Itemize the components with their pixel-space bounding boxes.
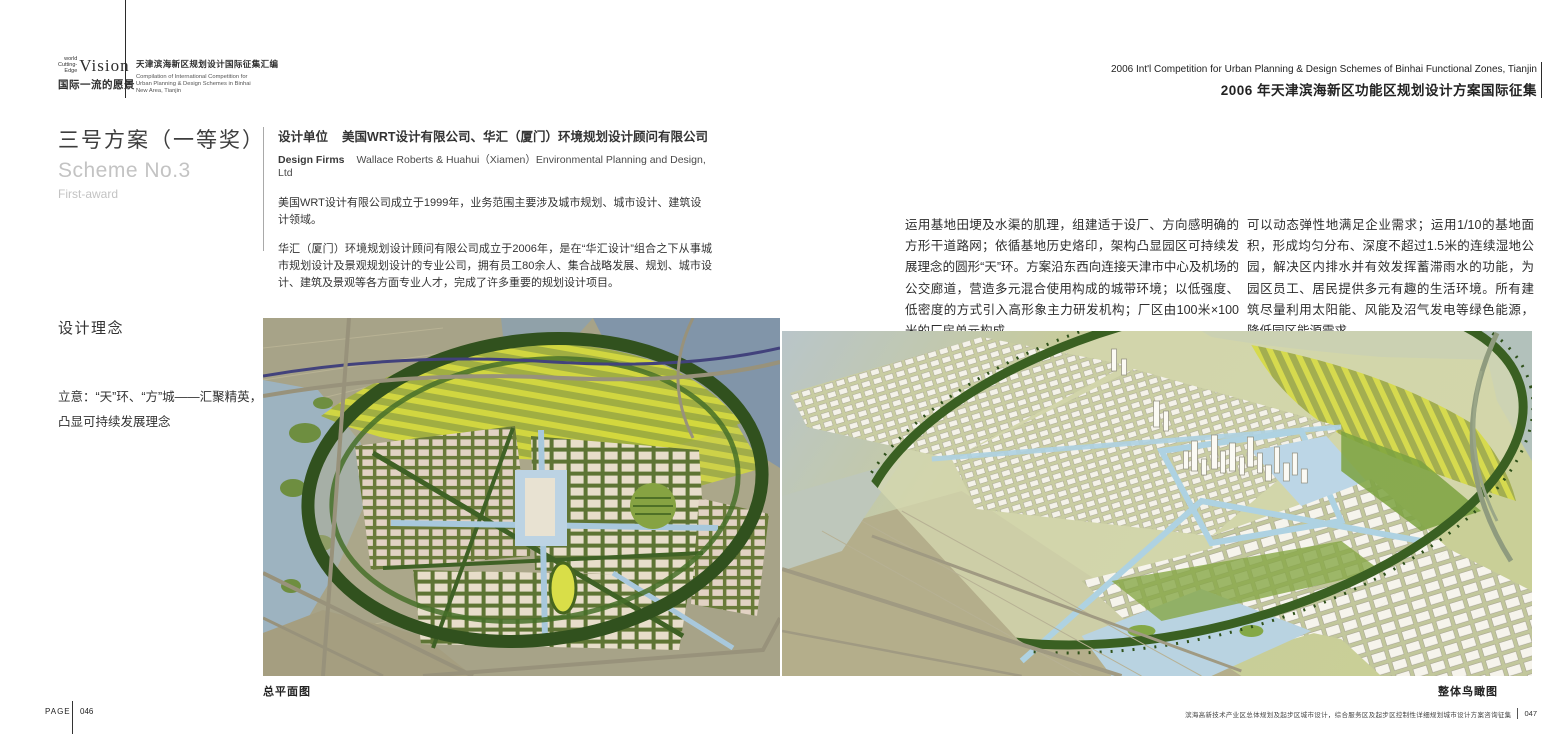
scheme-title-cn: 三号方案（一等奖） [58,124,265,154]
design-firms-row-en: Design FirmsWallace Roberts & Huahui（Xia… [278,152,712,179]
scheme-award-label: First-award [58,187,265,201]
logo-wordmark: Vision [79,57,129,74]
series-title-cn: 天津滨海新区规划设计国际征集汇编 [136,58,258,70]
series-title-block: 天津滨海新区规划设计国际征集汇编 Compilation of Internat… [136,58,258,95]
design-firms-label-cn: 设计单位 [278,130,328,144]
description-column-2: 可以动态弹性地满足企业需求；运用1/10的基地面积，形成均匀分布、深度不超过1.… [1247,215,1534,342]
competition-divider-rule [1541,62,1542,98]
concept-statement: 立意：“天”环、“方”城——汇聚精英，凸显可持续发展理念 [58,385,270,435]
master-plan-image [263,318,780,676]
footer-right-block: 滨海高新技术产业区总体规划及起步区城市设计，综合服务区及起步区控制性详细规划城市… [1185,708,1537,719]
competition-title-block: 2006 Int'l Competition for Urban Plannin… [997,64,1537,99]
scheme-title-block: 三号方案（一等奖） Scheme No.3 First-award [58,124,265,201]
design-firms-block: 设计单位美国WRT设计有限公司、华汇（厦门）环境规划设计顾问有限公司 Desig… [278,126,712,292]
scheme-title-en: Scheme No.3 [58,159,265,183]
design-firms-value-cn: 美国WRT设计有限公司、华汇（厦门）环境规划设计顾问有限公司 [342,130,708,144]
competition-title-cn: 2006 年天津滨海新区功能区规划设计方案国际征集 [997,79,1537,99]
logo-subtitle: 国际一流的愿景 [58,77,124,92]
design-firms-row-cn: 设计单位美国WRT设计有限公司、华汇（厦门）环境规划设计顾问有限公司 [278,126,712,145]
page-label: PAGE [45,707,71,716]
plan-caption: 总平面图 [263,683,311,699]
design-firms-label-en: Design Firms [278,154,345,166]
competition-title-en: 2006 Int'l Competition for Urban Plannin… [997,64,1537,75]
page-number-right: 047 [1524,709,1537,718]
page-number-left: 046 [80,707,93,716]
book-spread-page: world Cutting-Edge Vision 国际一流的愿景 天津滨海新区… [0,0,1559,750]
firm-profile-wrt: 美国WRT设计有限公司成立于1999年，业务范围主要涉及城市规划、城市设计、建筑… [278,195,712,229]
firm-profile-huahui: 华汇（厦门）环境规划设计顾问有限公司成立于2006年，是在“华汇设计”组合之下从… [278,241,712,292]
description-column-1: 运用基地田埂及水渠的肌理，组建适于设厂、方向感明确的方形干道路网；依循基地历史烙… [905,215,1239,342]
plan-round-grove [630,483,676,529]
firms-divider-rule [263,127,264,251]
footer-chapter-title: 滨海高新技术产业区总体规划及起步区城市设计，综合服务区及起步区控制性详细规划城市… [1185,709,1511,719]
plan-stadium [550,563,576,613]
footer-rule [1517,708,1518,719]
page-number-rule [72,701,73,734]
series-title-en: Compilation of International Competition… [136,74,258,95]
logo-pretitle: world Cutting-Edge [58,56,77,74]
plan-civic-axis [525,478,555,536]
master-plan-figure [263,318,780,676]
aerial-caption: 整体鸟瞰图 [1438,683,1498,699]
aerial-view-image [782,331,1532,676]
aerial-view-figure [782,331,1532,676]
vision-logo: world Cutting-Edge Vision 国际一流的愿景 [58,56,124,92]
concept-heading: 设计理念 [58,317,124,338]
